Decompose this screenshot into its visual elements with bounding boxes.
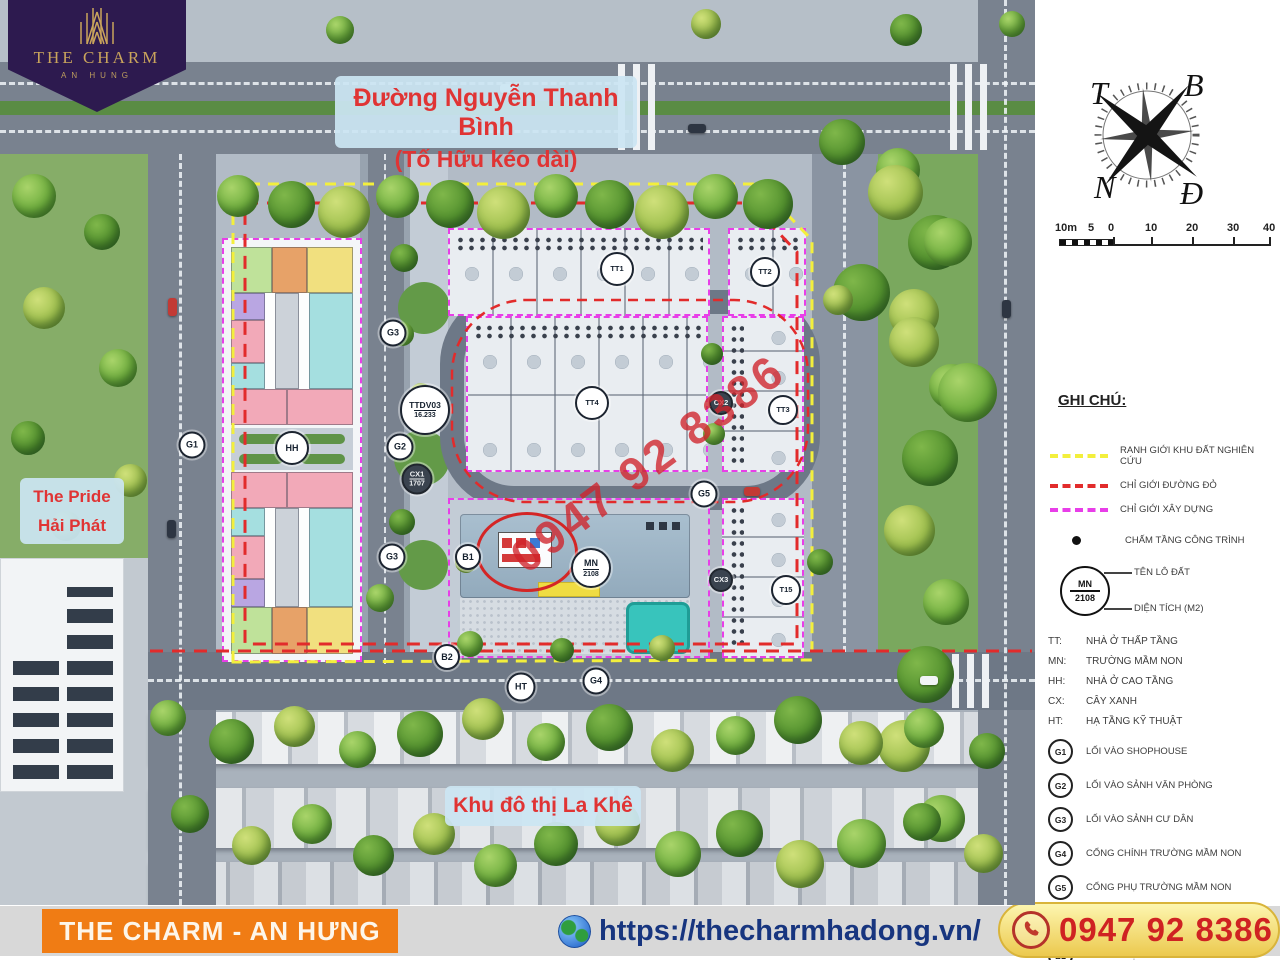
neighbor-label-la-khe: Khu đô thị La Khê [445, 786, 641, 826]
scale-tick-label: 0 [1108, 222, 1114, 234]
tree [462, 698, 504, 740]
tree [868, 165, 923, 220]
legend-dot-item: CHẤM TẦNG CÔNG TRÌNH [1048, 535, 1273, 546]
tower-floorplan-north [231, 247, 353, 425]
gate-circle: G1 [1048, 739, 1073, 764]
car [920, 676, 938, 685]
lot-circle-symbol: MN 2108 [1060, 566, 1110, 616]
tree [819, 119, 865, 165]
abbr-label: CÂY XANH [1086, 696, 1137, 707]
abbr-label: NHÀ Ở CAO TẦNG [1086, 676, 1173, 687]
tree [171, 795, 209, 833]
phone-icon [1012, 911, 1050, 949]
scale-bar: 10m5010203040 [1055, 222, 1275, 250]
legend-panel: T B N Đ 10m5010203040 GHI CHÚ: RANH GIỚI… [1035, 0, 1280, 905]
scale-bar-segments [1059, 239, 1115, 246]
tree [903, 803, 941, 841]
tree [217, 175, 259, 217]
tree [586, 704, 633, 751]
tree [550, 638, 574, 662]
car [688, 124, 706, 133]
scale-tick-label: 30 [1227, 222, 1239, 234]
abbr-label: TRƯỜNG MẦM NON [1086, 656, 1183, 667]
tree [585, 180, 634, 229]
scale-tick-label: 10 [1145, 222, 1157, 234]
legend-abbreviation-row: MN:TRƯỜNG MẦM NON [1048, 656, 1273, 667]
tree [924, 218, 972, 266]
tree [890, 14, 922, 46]
scale-tick-label: 10m [1055, 222, 1077, 234]
tree [969, 733, 1005, 769]
legend-line-swatch [1050, 484, 1108, 488]
dot-symbol [1072, 536, 1081, 545]
gate-circle: G3 [1048, 807, 1073, 832]
tree [366, 584, 394, 612]
tree [649, 635, 675, 661]
tree [474, 844, 517, 887]
tree [534, 174, 578, 218]
crosswalk [950, 64, 994, 150]
legend-line-label: RANH GIỚI KHU ĐẤT NGHIÊN CỨU [1120, 445, 1273, 467]
lot-area-label: DIỆN TÍCH (M2) [1134, 603, 1204, 614]
lane-line [843, 154, 846, 652]
pride-building-roof [0, 558, 124, 792]
tree [938, 363, 997, 422]
car [168, 298, 177, 316]
footer-phone-button[interactable]: 0947 92 8386 [998, 902, 1280, 958]
crosswalk [952, 654, 992, 708]
legend-abbreviation-row: TT:NHÀ Ở THẤP TẦNG [1048, 636, 1273, 647]
tree [902, 430, 958, 486]
tree [837, 819, 886, 868]
brand-subtitle: AN HUNG [61, 71, 133, 80]
tree [716, 810, 763, 857]
legend-abbreviation-row: HH:NHÀ Ở CAO TẦNG [1048, 676, 1273, 687]
map-marker-g3: G3 [380, 320, 407, 347]
tree [701, 343, 723, 365]
legend-gate-row: G5CỔNG PHỤ TRƯỜNG MẦM NON [1048, 875, 1273, 900]
footer-bar: THE CHARM - AN HƯNG https://thecharmhado… [0, 906, 1280, 956]
lane-line [179, 154, 182, 905]
legend-line-swatch [1050, 454, 1108, 458]
gate-circle: G2 [1048, 773, 1073, 798]
car [1002, 300, 1011, 318]
brand-title: THE CHARM [34, 48, 161, 68]
tree [390, 244, 418, 272]
tree [635, 185, 689, 239]
road-name-sign: Đường Nguyễn Thanh Bình (Tố Hữu kéo dài) [335, 76, 637, 148]
legend-abbreviation-row: CX:CÂY XANH [1048, 696, 1273, 707]
abbr-code: CX: [1048, 696, 1086, 707]
roof-panels [67, 587, 113, 779]
tree [884, 505, 935, 556]
footer-project-title: THE CHARM - AN HƯNG [42, 909, 398, 953]
map-marker-g2: G2 [387, 434, 414, 461]
abbr-code: HT: [1048, 716, 1086, 727]
map-marker-ttdv03: TTDV0316.233 [400, 385, 450, 435]
legend-abbreviations: TT:NHÀ Ở THẤP TẦNGMN:TRƯỜNG MẦM NONHH:NH… [1048, 636, 1273, 727]
legend: GHI CHÚ: RANH GIỚI KHU ĐẤT NGHIÊN CỨUCHỈ… [1048, 392, 1273, 960]
car [167, 520, 176, 538]
compass-east: Đ [1179, 175, 1203, 211]
legend-gate-row: G1LỐI VÀO SHOPHOUSE [1048, 739, 1273, 764]
tree [232, 826, 271, 865]
compass-north: B [1184, 67, 1204, 103]
tree [889, 317, 939, 367]
phone-number[interactable]: 0947 92 8386 [1059, 911, 1273, 949]
tree [389, 509, 415, 535]
gate-label: LỐI VÀO SHOPHOUSE [1086, 746, 1187, 757]
map-marker-tt1: TT1 [600, 252, 634, 286]
car [744, 487, 760, 496]
abbr-label: NHÀ Ở THẤP TẦNG [1086, 636, 1178, 647]
map-marker-mn: MN2108 [571, 548, 611, 588]
map-marker-g4: G4 [583, 668, 610, 695]
roof-panels [13, 651, 59, 779]
map-marker-g1: G1 [179, 432, 206, 459]
map-marker-g5: G5 [691, 481, 718, 508]
road-west [148, 154, 216, 905]
tree [23, 287, 65, 329]
gate-circle: G5 [1048, 875, 1073, 900]
legend-boundary-items: RANH GIỚI KHU ĐẤT NGHIÊN CỨUCHỈ GIỚI ĐƯỜ… [1048, 445, 1273, 515]
legend-lot-symbol: MN 2108 TÊN LÔ ĐẤT DIỆN TÍCH (M2) [1048, 560, 1273, 626]
tree [743, 179, 793, 229]
tree [776, 840, 824, 888]
abbr-label: HẠ TẦNG KỸ THUẬT [1086, 716, 1182, 727]
tree [923, 579, 969, 625]
legend-gate-row: G4CỔNG CHÍNH TRƯỜNG MẦM NON [1048, 841, 1273, 866]
map-marker-cx3: CX3 [709, 568, 733, 592]
tree [99, 349, 137, 387]
tree [274, 706, 315, 747]
legend-boundary-item: CHỈ GIỚI XÂY DỰNG [1048, 504, 1273, 515]
map-marker-hh: HH [275, 431, 309, 465]
planting-circle [398, 540, 448, 590]
tree [292, 804, 332, 844]
tree [651, 729, 694, 772]
gate-label: CỔNG CHÍNH TRƯỜNG MẦM NON [1086, 848, 1241, 859]
tree [397, 711, 443, 757]
abbr-code: MN: [1048, 656, 1086, 667]
legend-line-label: CHỈ GIỚI XÂY DỰNG [1120, 504, 1213, 515]
tree [12, 174, 56, 218]
site-plan-map: Đường Nguyễn Thanh Bình (Tố Hữu kéo dài)… [0, 0, 1035, 905]
road-name-line2: (Tố Hữu kéo dài) [335, 146, 637, 173]
legend-gate-row: G3LỐI VÀO SẢNH CƯ DÂN [1048, 807, 1273, 832]
tree [964, 834, 1003, 873]
road-name-line1: Đường Nguyễn Thanh Bình [335, 84, 637, 142]
neighbor-label-the-pride: The Pride Hải Phát [20, 478, 124, 544]
lot-name-label: TÊN LÔ ĐẤT [1134, 567, 1190, 578]
brand-emblem-icon [72, 6, 122, 46]
legend-boundary-item: CHỈ GIỚI ĐƯỜNG ĐỎ [1048, 480, 1273, 491]
compass-west: T [1090, 75, 1110, 111]
tree [534, 822, 578, 866]
tree [353, 835, 394, 876]
tree [150, 700, 186, 736]
tree [11, 421, 45, 455]
tree [691, 9, 721, 39]
legend-line-label: CHỈ GIỚI ĐƯỜNG ĐỎ [1120, 480, 1217, 491]
townhouse-row-tt1 [448, 228, 710, 316]
gate-label: LỐI VÀO SẢNH VĂN PHÒNG [1086, 780, 1213, 791]
tree [326, 16, 354, 44]
scale-tick-label: 5 [1088, 222, 1094, 234]
map-marker-b2: B2 [434, 644, 460, 670]
footer-website-link[interactable]: https://thecharmhadong.vn/ [558, 906, 981, 956]
tree [655, 831, 701, 877]
legend-abbreviation-row: HT:HẠ TẦNG KỸ THUẬT [1048, 716, 1273, 727]
tree [904, 708, 944, 748]
abbr-code: HH: [1048, 676, 1086, 687]
legend-heading: GHI CHÚ: [1058, 392, 1273, 409]
scale-tick-label: 20 [1186, 222, 1198, 234]
legend-gate-row: G2LỐI VÀO SẢNH VĂN PHÒNG [1048, 773, 1273, 798]
scale-tick-label: 40 [1263, 222, 1275, 234]
gate-label: CỔNG PHỤ TRƯỜNG MẦM NON [1086, 882, 1231, 893]
tree [268, 181, 315, 228]
tree [693, 174, 738, 219]
tree [477, 186, 530, 239]
gate-label: LỐI VÀO SẢNH CƯ DÂN [1086, 814, 1193, 825]
legend-line-swatch [1050, 508, 1108, 512]
legend-boundary-item: RANH GIỚI KHU ĐẤT NGHIÊN CỨU [1048, 445, 1273, 467]
tree [807, 549, 833, 575]
tree [839, 721, 883, 765]
tree [339, 731, 376, 768]
website-url[interactable]: https://thecharmhadong.vn/ [599, 915, 981, 948]
abbr-code: TT: [1048, 636, 1086, 647]
compass-rose-icon: T B N Đ [1072, 48, 1222, 220]
tree [999, 11, 1025, 37]
masterplan-page: Đường Nguyễn Thanh Bình (Tố Hữu kéo dài)… [0, 0, 1280, 960]
tree [318, 186, 370, 238]
gate-circle: G4 [1048, 841, 1073, 866]
tree [376, 175, 419, 218]
map-marker-ht: HT [507, 673, 536, 702]
compass-south: N [1093, 169, 1117, 205]
tree [84, 214, 120, 250]
tree [716, 716, 755, 755]
tree [897, 646, 954, 703]
map-marker-tt4: TT4 [575, 386, 609, 420]
lakhe-houses-row [150, 862, 1033, 905]
map-marker-cx1: CX11707 [402, 464, 433, 495]
tree [426, 180, 474, 228]
tree [457, 631, 483, 657]
tree [527, 723, 565, 761]
map-marker-t15: T15 [771, 575, 801, 605]
map-marker-tt2: TT2 [750, 257, 780, 287]
globe-icon [558, 915, 591, 948]
tree [774, 696, 822, 744]
tower-floorplan-south [231, 472, 353, 654]
lane-line [1004, 0, 1007, 905]
map-marker-g3: G3 [379, 544, 406, 571]
tree [209, 719, 254, 764]
